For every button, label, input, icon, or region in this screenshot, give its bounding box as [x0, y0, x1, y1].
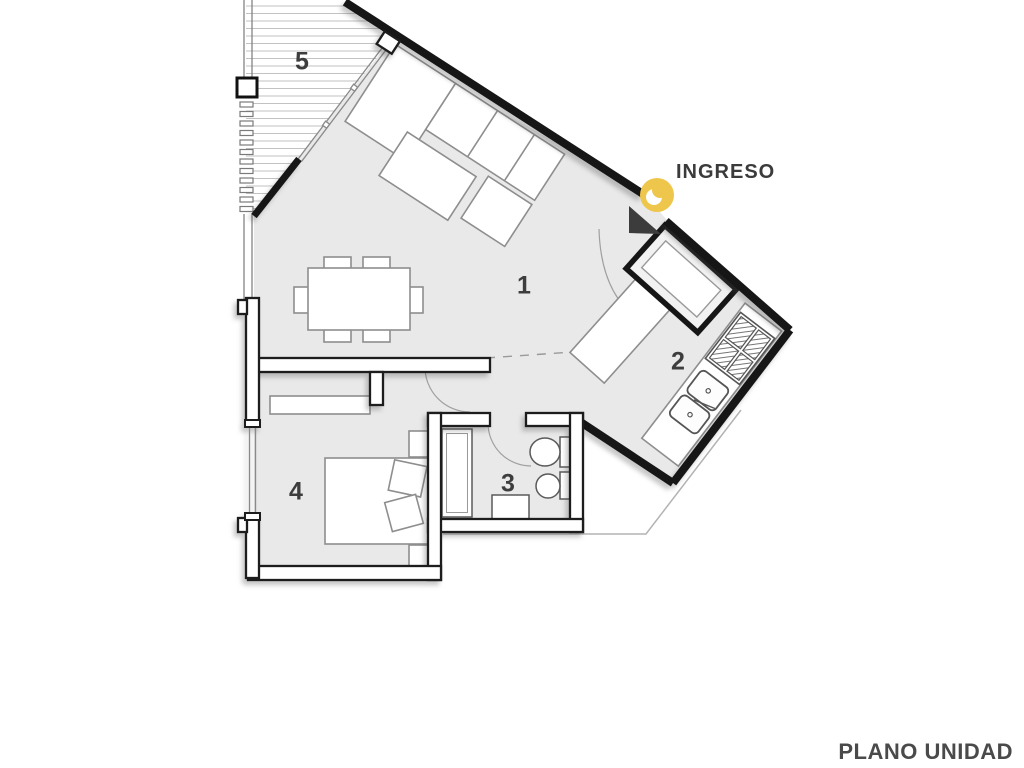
floor-plan-drawing — [0, 0, 1024, 768]
wall-bedroom-bottom — [248, 566, 441, 580]
wall-living-bedroom — [248, 358, 490, 372]
entry-direction-icon — [640, 178, 674, 212]
dining-set — [294, 257, 423, 342]
pillow — [388, 460, 427, 497]
toilet-bowl — [530, 438, 560, 466]
wall-bath-right — [570, 413, 583, 532]
wall-left-upper — [246, 298, 259, 426]
room-label-bedroom: 4 — [289, 478, 303, 507]
dining-table — [308, 268, 410, 330]
plan-title: PLANO UNIDAD — [838, 739, 1013, 765]
entry-label: INGRESO — [676, 161, 775, 184]
balcony-column — [237, 78, 257, 97]
room-label-kitchen: 2 — [671, 348, 685, 377]
wall-stub — [370, 372, 383, 405]
room-label-bathroom: 3 — [501, 470, 515, 499]
bidet-bowl — [536, 474, 560, 498]
wall-bedroom-right — [428, 413, 441, 580]
floor-plan: 5 1 2 3 4 INGRESO PLANO UNIDAD — [0, 0, 1024, 768]
wall-bath-bottom — [428, 519, 583, 532]
wall-pier — [238, 300, 247, 314]
wardrobe — [270, 396, 370, 414]
room-label-living: 1 — [517, 272, 531, 301]
room-label-balcony: 5 — [295, 48, 309, 77]
